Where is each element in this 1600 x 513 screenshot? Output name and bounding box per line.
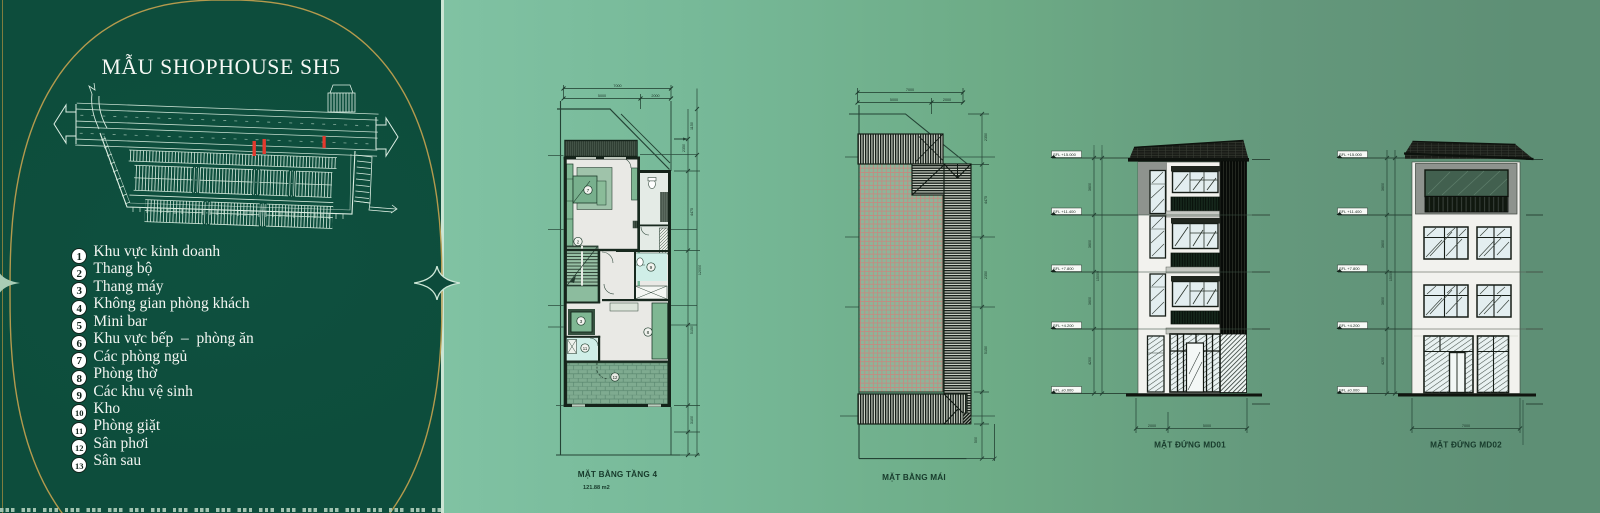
svg-text:2: 2 [577, 239, 580, 245]
svg-text:SFL +7.800: SFL +7.800 [1339, 266, 1360, 271]
svg-text:MẶT BẰNG TẦNG 4: MẶT BẰNG TẦNG 4 [578, 469, 658, 479]
svg-text:SFL ±0.000: SFL ±0.000 [1053, 388, 1074, 393]
svg-text:5150: 5150 [690, 326, 694, 334]
svg-text:7000: 7000 [613, 84, 621, 88]
svg-text:5000: 5000 [598, 94, 606, 98]
svg-text:7: 7 [587, 188, 590, 194]
svg-text:3600: 3600 [1088, 297, 1092, 305]
svg-text:3600: 3600 [1381, 183, 1385, 191]
svg-text:11: 11 [583, 346, 588, 351]
svg-text:MẶT BẰNG MÁI: MẶT BẰNG MÁI [882, 472, 946, 482]
svg-text:2000: 2000 [1148, 424, 1156, 428]
svg-text:5000: 5000 [1203, 424, 1211, 428]
svg-text:7000: 7000 [906, 88, 914, 92]
svg-text:8: 8 [647, 330, 650, 336]
svg-text:2000: 2000 [943, 98, 951, 102]
svg-text:SFL +15.000: SFL +15.000 [1339, 152, 1363, 157]
svg-text:MẶT ĐỨNG MD02: MẶT ĐỨNG MD02 [1430, 439, 1502, 450]
svg-text:1150: 1150 [690, 122, 694, 130]
svg-text:12: 12 [613, 375, 618, 380]
svg-text:SFL +4.200: SFL +4.200 [1053, 323, 1074, 328]
svg-text:2350: 2350 [984, 133, 988, 141]
svg-text:7000: 7000 [1462, 424, 1470, 428]
svg-text:4200: 4200 [1088, 357, 1092, 365]
svg-text:SFL +7.800: SFL +7.800 [1053, 266, 1074, 271]
svg-text:15000: 15000 [1389, 271, 1393, 281]
svg-text:3600: 3600 [1088, 183, 1092, 191]
svg-text:500: 500 [974, 437, 978, 443]
svg-text:15000: 15000 [1096, 271, 1100, 281]
svg-text:SFL ±0.000: SFL ±0.000 [1339, 388, 1360, 393]
svg-text:3600: 3600 [1381, 240, 1385, 248]
svg-text:3: 3 [580, 319, 583, 325]
svg-text:3600: 3600 [1088, 240, 1092, 248]
svg-text:SFL +11.400: SFL +11.400 [1053, 209, 1076, 214]
svg-text:MẶT ĐỨNG MD01: MẶT ĐỨNG MD01 [1154, 439, 1226, 450]
svg-text:2350: 2350 [984, 271, 988, 279]
svg-text:4475: 4475 [984, 196, 988, 204]
svg-text:2000: 2000 [651, 94, 659, 98]
svg-text:4475: 4475 [690, 208, 694, 216]
svg-text:5150: 5150 [984, 346, 988, 354]
svg-text:3100: 3100 [690, 416, 694, 424]
svg-text:9: 9 [650, 265, 653, 271]
svg-text:2350: 2350 [682, 144, 686, 152]
svg-text:5000: 5000 [890, 98, 898, 102]
svg-text:12000: 12000 [698, 265, 702, 275]
svg-text:SFL +4.200: SFL +4.200 [1339, 323, 1360, 328]
svg-text:121.88 m2: 121.88 m2 [583, 485, 610, 491]
svg-text:SFL +11.400: SFL +11.400 [1339, 209, 1362, 214]
svg-text:4200: 4200 [1381, 357, 1385, 365]
svg-text:SFL +15.000: SFL +15.000 [1053, 152, 1077, 157]
svg-text:3600: 3600 [1381, 297, 1385, 305]
